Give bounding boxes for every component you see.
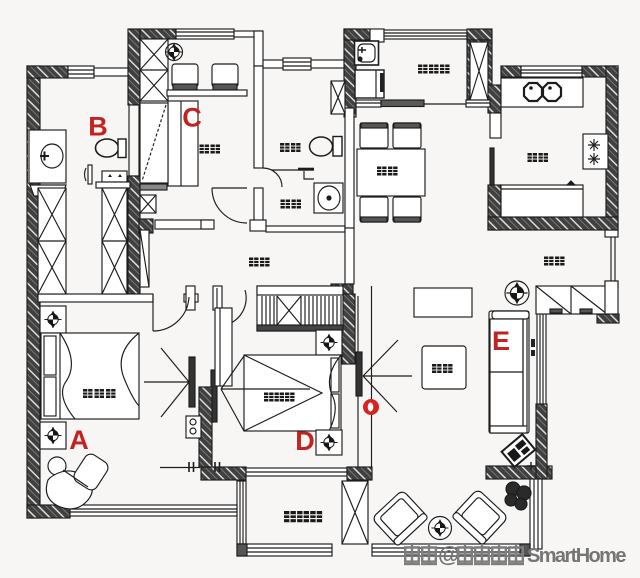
svg-text:E: E <box>492 326 510 356</box>
svg-text:A: A <box>69 425 89 455</box>
svg-text:C: C <box>182 103 202 133</box>
svg-text:SmartHome: SmartHome <box>527 545 626 567</box>
svg-text:D: D <box>295 426 315 456</box>
svg-text:B: B <box>88 112 108 142</box>
svg-text:@: @ <box>438 542 459 567</box>
